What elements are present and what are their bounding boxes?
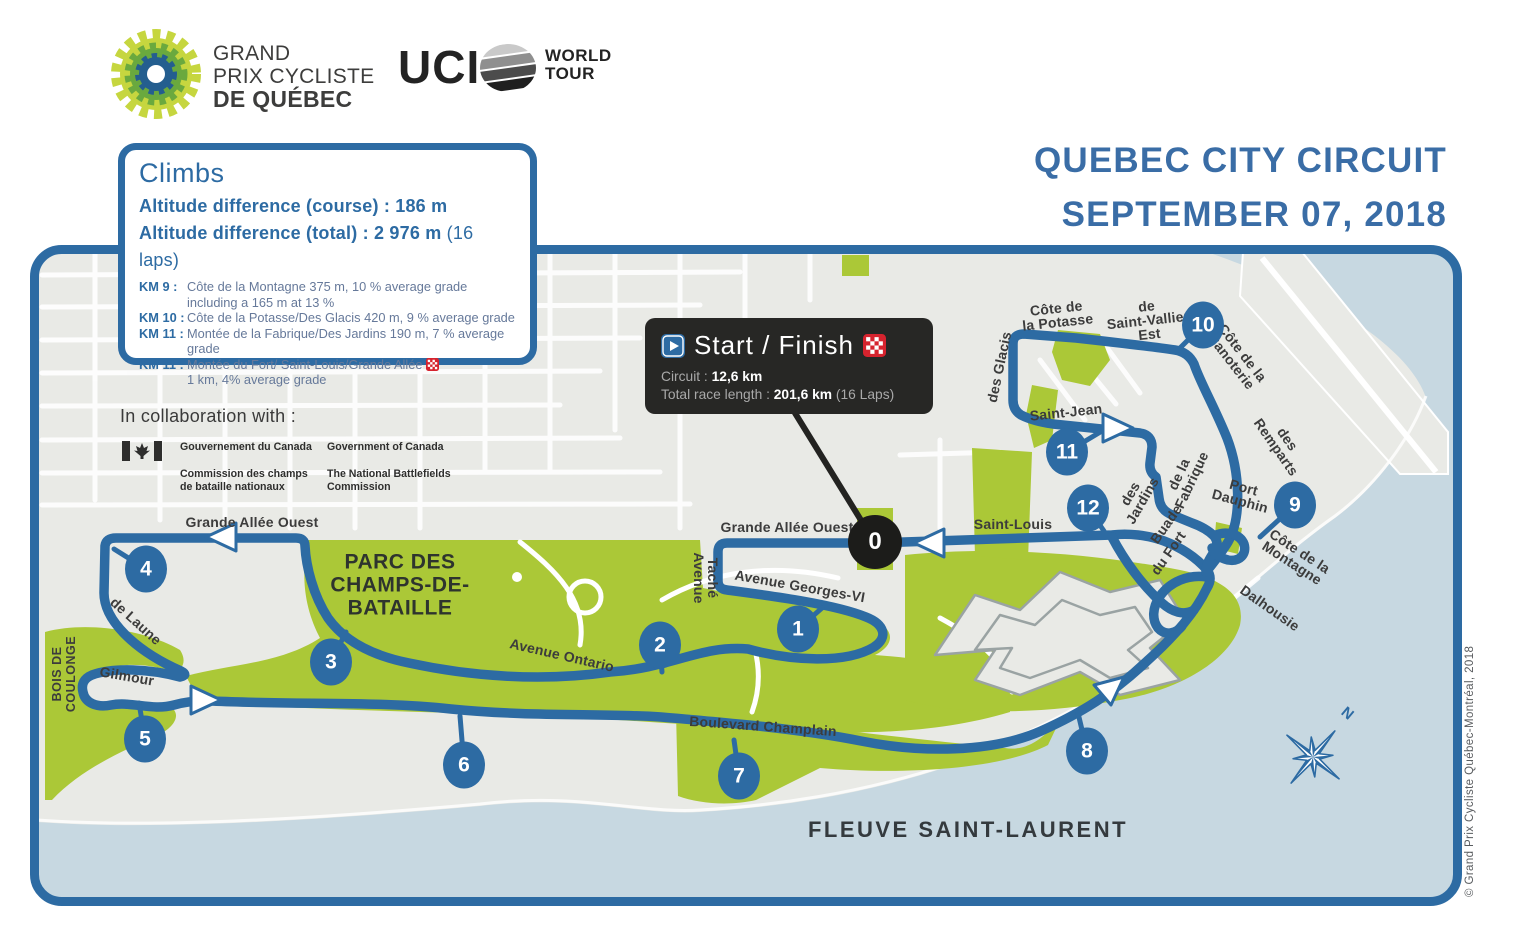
start-finish-callout: Start / Finish Circuit : 12,6 km Total r…: [645, 318, 933, 414]
altitude-course: Altitude difference (course) : 186 m: [139, 193, 516, 220]
climb-item-cont: including a 165 m at 13 %: [139, 295, 516, 311]
collaboration-label: In collaboration with :: [120, 406, 296, 427]
start-finish-title: Start / Finish: [694, 330, 854, 361]
street-label-saint-vallier-est: deSaint-VallierEst: [1105, 295, 1192, 345]
world-tour-text: WORLD TOUR: [545, 47, 612, 83]
street-label-grande-allee-ouest: Grande Allée Ouest: [720, 520, 853, 534]
globe-icon: [478, 42, 538, 94]
climbs-panel: Climbs Altitude difference (course) : 18…: [118, 143, 537, 365]
marker-12: 12: [1067, 485, 1109, 532]
street-label-avenue-tache: AvenueTaché: [692, 552, 720, 603]
start-finish-title-row: Start / Finish: [661, 330, 917, 361]
climb-list: KM 9 : Côte de la Montagne 375 m, 10 % a…: [139, 279, 516, 388]
street-label-cote-de-la-potasse: Côte dela Potasse: [1020, 297, 1094, 332]
marker-8: 8: [1066, 728, 1108, 775]
marker-5: 5: [124, 716, 166, 763]
start-finish-stats: Circuit : 12,6 km Total race length : 20…: [661, 368, 917, 404]
logo-line: DE QUÉBEC: [213, 88, 374, 111]
marker-4: 4: [125, 546, 167, 593]
marker-2: 2: [639, 622, 681, 669]
climb-item: KM 9 : Côte de la Montagne 375 m, 10 % a…: [139, 279, 516, 295]
logo-line: PRIX CYCLISTE: [213, 65, 374, 88]
marker-10: 10: [1182, 302, 1224, 349]
climb-item: KM 11 : Montée de la Fabrique/Des Jardin…: [139, 326, 516, 357]
climb-item-cont: 1 km, 4% average grade: [139, 372, 516, 388]
marker-7: 7: [718, 753, 760, 800]
title-line-2: SEPTEMBER 07, 2018: [1034, 188, 1447, 242]
page-title: QUEBEC CITY CIRCUIT SEPTEMBER 07, 2018: [1034, 134, 1447, 242]
collab-fr: Gouvernement du Canada Commission des ch…: [180, 441, 327, 508]
logo-line: GRAND: [213, 42, 374, 65]
gear-logo: [106, 24, 206, 124]
marker-9: 9: [1274, 482, 1316, 529]
street-label-grande-allee-ouest: Grande Allée Ouest: [185, 515, 318, 529]
collab-en: Government of Canada The National Battle…: [327, 441, 477, 508]
park-label-bois-de-coulonge: BOIS DECOULONGE: [50, 636, 78, 712]
climbs-title: Climbs: [139, 158, 516, 189]
title-line-1: QUEBEC CITY CIRCUIT: [1034, 134, 1447, 188]
marker-start-finish-0: 0: [848, 515, 902, 569]
marker-3: 3: [310, 639, 352, 686]
play-icon: [661, 334, 685, 358]
climb-item: KM 10 : Côte de la Potasse/Des Glacis 42…: [139, 310, 516, 326]
world-label: WORLD: [545, 47, 612, 65]
street-label-saint-louis: Saint-Louis: [974, 517, 1052, 531]
tour-label: TOUR: [545, 65, 612, 83]
river-label-fleuve-saint-laurent: FLEUVE SAINT-LAURENT: [808, 823, 1128, 837]
canada-flag: [122, 441, 162, 461]
park-label-champs-de-bataille: PARC DESCHAMPS-DE-BATAILLE: [330, 551, 469, 620]
marker-11: 11: [1046, 429, 1088, 476]
altitude-total: Altitude difference (total) : 2 976 m (1…: [139, 220, 516, 274]
checkered-flag-icon: [863, 334, 886, 357]
checkered-flag-icon: [426, 358, 439, 371]
event-logo-text: GRAND PRIX CYCLISTE DE QUÉBEC: [213, 42, 374, 111]
path-node: [512, 572, 522, 582]
climb-item: KM 11 : Montée du Fort/ Saint-Louis/Gran…: [139, 357, 516, 373]
collaboration-block: Gouvernement du Canada Commission des ch…: [122, 441, 477, 508]
poster: GRAND PRIX CYCLISTE DE QUÉBEC UCI WORLD …: [0, 0, 1540, 936]
marker-1: 1: [777, 606, 819, 653]
marker-6: 6: [443, 742, 485, 789]
copyright-note: © Grand Prix Cycliste Québec-Montréal, 2…: [1464, 646, 1476, 897]
uci-wordmark: UCI: [398, 40, 480, 94]
